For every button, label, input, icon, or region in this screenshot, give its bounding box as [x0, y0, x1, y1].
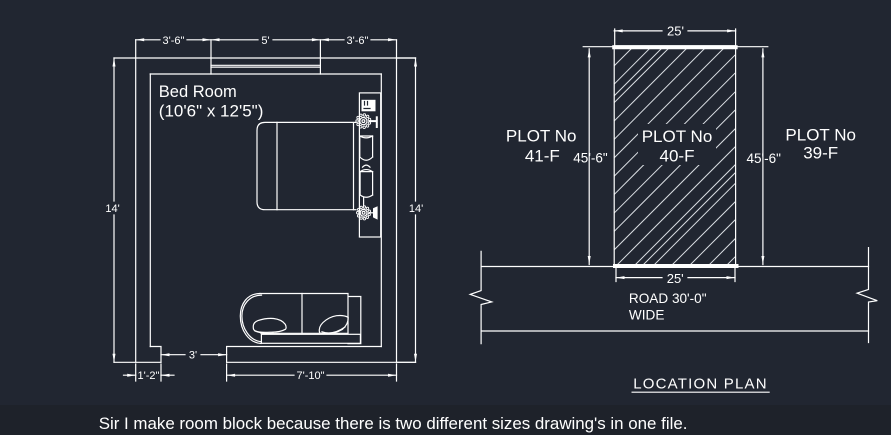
svg-text:(10'6" x 12'5"): (10'6" x 12'5") — [159, 102, 264, 121]
svg-text:PLOT No: PLOT No — [785, 125, 856, 144]
svg-text:Bed Room: Bed Room — [159, 83, 237, 101]
svg-text:25': 25' — [667, 24, 684, 39]
svg-text:41-F: 41-F — [525, 147, 560, 166]
svg-text:LOCATION PLAN: LOCATION PLAN — [633, 375, 768, 392]
svg-text:39-F: 39-F — [803, 144, 838, 163]
svg-text:Sir I make room block because: Sir I make room block because there is t… — [99, 414, 688, 433]
svg-text:5': 5' — [261, 35, 269, 47]
svg-text:45'-6": 45'-6" — [573, 151, 608, 166]
svg-text:1'-2": 1'-2" — [138, 370, 160, 382]
svg-text:14': 14' — [105, 203, 119, 215]
svg-text:3'-6": 3'-6" — [347, 35, 369, 47]
svg-text:3': 3' — [189, 350, 197, 362]
svg-text:40-F: 40-F — [660, 147, 695, 166]
svg-text:PLOT No: PLOT No — [506, 126, 577, 145]
svg-text:25': 25' — [667, 271, 684, 286]
svg-text:14': 14' — [409, 203, 423, 215]
svg-text:ROAD 30'-0": ROAD 30'-0" — [629, 291, 707, 306]
svg-text:PLOT No: PLOT No — [642, 127, 713, 146]
svg-text:3'-6": 3'-6" — [163, 35, 185, 47]
svg-text:7'-10": 7'-10" — [296, 370, 324, 382]
svg-text:WIDE: WIDE — [629, 308, 665, 323]
svg-text:45'-6": 45'-6" — [747, 151, 782, 166]
